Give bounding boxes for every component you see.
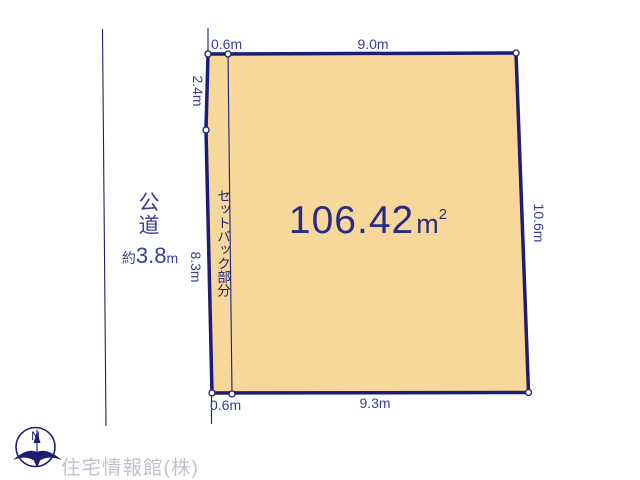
dim-top: 9.0m <box>350 36 396 52</box>
dim-bottom: 9.3m <box>353 395 397 411</box>
road-width-value: 3.8 <box>136 243 167 269</box>
area-unit-exponent: 2 <box>439 206 447 223</box>
land-plot-diagram: N 0.6m 9.0m 2.4m 8.3m 10.6m 0.6m 9.3m 10… <box>0 0 640 480</box>
area-unit: m2 <box>416 206 447 240</box>
vertex-marker <box>526 390 532 396</box>
vertex-marker <box>203 127 209 133</box>
dim-left-lower: 8.3m <box>188 247 204 287</box>
area-value: 106.42 <box>289 199 414 243</box>
dim-left-upper: 2.4m <box>190 71 206 111</box>
parcel-area: 106.42 m2 <box>260 199 476 251</box>
compass-north-label: N <box>31 429 40 443</box>
road-name: 公道 <box>135 191 159 243</box>
dim-top-setback: 0.6m <box>211 36 242 52</box>
road-boundary-line <box>103 29 107 426</box>
dim-bottom-setback: 0.6m <box>210 397 241 413</box>
compass-north-icon: N <box>13 428 62 468</box>
dim-right: 10.6m <box>531 200 547 246</box>
area-unit-m: m <box>416 209 439 239</box>
road-width-unit: m <box>166 250 178 266</box>
vertex-marker <box>209 390 215 396</box>
road-width-prefix: 約 <box>122 248 136 268</box>
road-width: 約 3.8 m <box>113 243 187 267</box>
vertex-marker <box>513 50 519 56</box>
setback-label: セットバック部分 <box>214 189 229 301</box>
company-name: 住宅情報館(株) <box>61 451 199 480</box>
